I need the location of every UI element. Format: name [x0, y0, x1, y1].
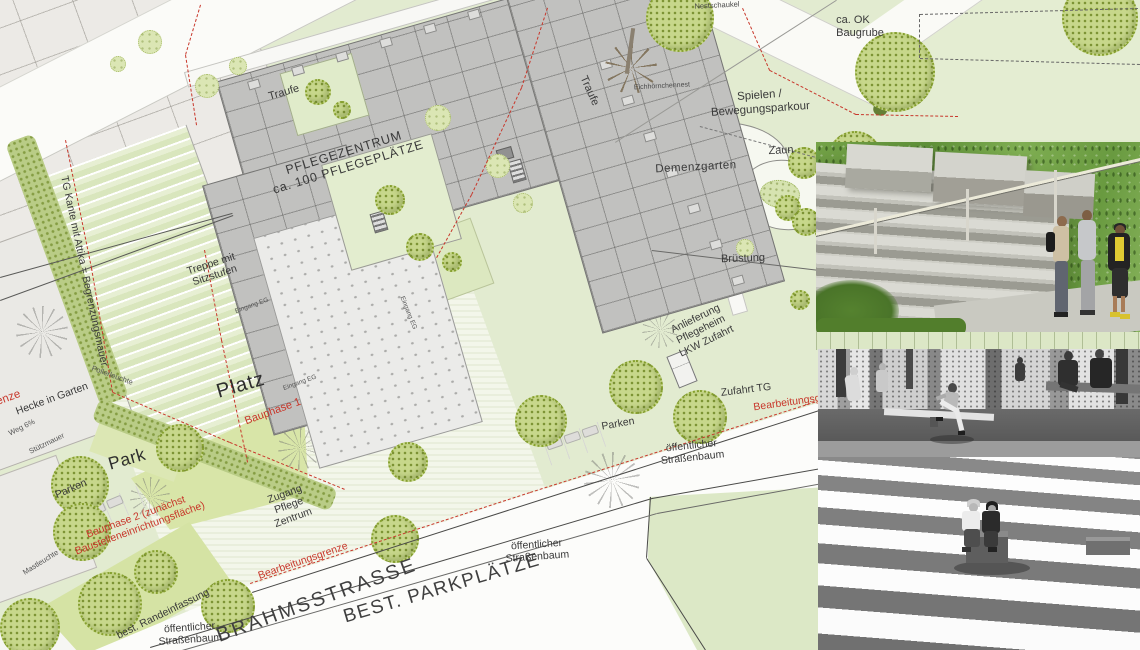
- shirt: [1115, 237, 1124, 261]
- shoe-2: [958, 431, 965, 435]
- calf-r: [1121, 296, 1125, 312]
- shoe-r: [1120, 314, 1130, 319]
- concrete-cube-1: [845, 144, 933, 192]
- label-zaun: Zaun: [768, 144, 794, 158]
- tree-icon: [855, 32, 935, 112]
- plan-line: [919, 14, 920, 58]
- figure-runner: [936, 383, 976, 439]
- car-icon: [106, 495, 124, 510]
- tree-icon: [110, 56, 126, 72]
- figure-seated-1: [1058, 351, 1082, 395]
- handrail-post-2: [966, 189, 969, 241]
- tree-icon: [513, 193, 533, 213]
- plaza-mid-band: [818, 441, 1140, 457]
- calf-l: [1113, 296, 1117, 312]
- label-strassenbaum-a: öffentlicher Straßenbaum: [504, 536, 569, 565]
- bench-block: [1086, 541, 1130, 555]
- tree-icon: [406, 233, 434, 261]
- car-icon: [581, 424, 599, 438]
- garden-plots-strip: [816, 330, 1140, 350]
- pedestrian-2: [1074, 210, 1104, 330]
- tree-icon: [229, 57, 247, 75]
- figure-child-left-2: [876, 363, 892, 397]
- kid-b-jacket: [982, 511, 1000, 533]
- tree-icon: [375, 185, 405, 215]
- grass-strip-bottom: [816, 318, 966, 332]
- label-spielen: Spielen / Bewegungsparkour: [710, 86, 811, 120]
- tree-icon: [515, 395, 567, 447]
- figure-child-left: [846, 367, 866, 407]
- photo-concrete-steps: [816, 142, 1140, 332]
- tree-icon: [425, 105, 451, 131]
- kid-b-shoes: [988, 547, 997, 552]
- body: [1015, 363, 1025, 381]
- body: [844, 374, 861, 402]
- site-plan-sheet: TraufeTraufePFLEGEZENTRUM ca. 100 PFLEGE…: [0, 0, 1140, 650]
- body: [1090, 358, 1112, 388]
- tree-icon: [333, 101, 351, 119]
- shoes: [1054, 312, 1068, 317]
- legs: [1081, 260, 1095, 312]
- figure-distant: [1014, 357, 1028, 387]
- kid-a-pants: [964, 529, 980, 547]
- label-parken-a: Parken: [601, 415, 636, 433]
- tree-icon: [156, 424, 204, 472]
- pedestrian-3: [1104, 224, 1138, 332]
- tree-icon: [486, 154, 510, 178]
- figure-seated-2: [1090, 349, 1116, 395]
- handrail-post-1: [874, 208, 877, 254]
- tree-icon: [0, 598, 60, 650]
- tree-icon: [195, 74, 219, 98]
- cube-shadow: [954, 561, 1030, 575]
- tree-icon: [305, 79, 331, 105]
- legs: [1055, 261, 1068, 313]
- shoe-l: [1110, 312, 1120, 317]
- concrete-cube-2: [933, 152, 1027, 207]
- kid-a-shoes: [962, 547, 971, 552]
- tree-icon: [609, 360, 663, 414]
- label-strassenbaum-b: öffentlicher Straßenbaum: [157, 619, 222, 648]
- torso: [1053, 226, 1069, 262]
- label-baugrube: ca. OK Baugrube: [836, 14, 884, 40]
- sitting-kids-group: [958, 501, 1028, 579]
- existing-tree-sketch-icon: [16, 306, 68, 358]
- shoe-1: [936, 417, 943, 421]
- leg-back: [954, 408, 964, 431]
- tree-icon: [388, 442, 428, 482]
- tree-trunk-3: [1116, 349, 1128, 404]
- shoes: [1080, 310, 1095, 315]
- car-icon: [563, 431, 581, 445]
- kid-b-pants: [984, 531, 998, 547]
- capri: [1112, 268, 1128, 298]
- tree-trunk-1: [836, 349, 846, 397]
- kid-a-shirt: [962, 511, 980, 531]
- tree-icon: [442, 252, 462, 272]
- bag: [1046, 232, 1055, 252]
- photo-stripe-rendering: [818, 349, 1140, 650]
- label-zufahrt-tg: Zufahrt TG: [720, 381, 772, 399]
- tree-trunk-2: [906, 349, 913, 389]
- label-bruestung: Brüstung: [721, 252, 765, 266]
- body: [876, 370, 888, 392]
- torso: [1078, 220, 1096, 260]
- tree-icon: [134, 550, 178, 594]
- tree-icon: [138, 30, 162, 54]
- tree-icon: [790, 290, 810, 310]
